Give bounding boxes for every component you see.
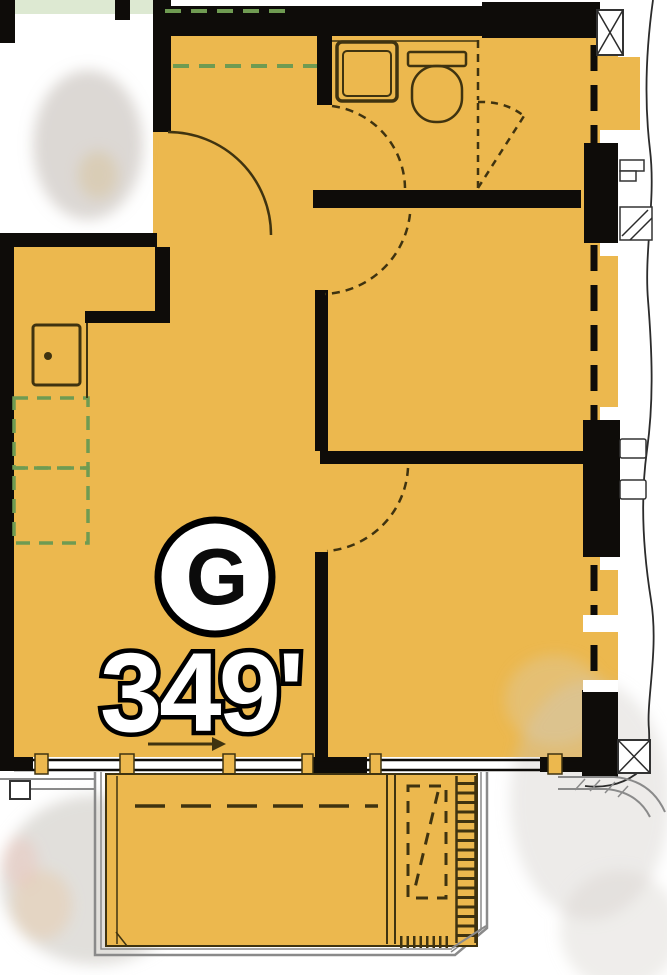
facade-block-1 (584, 143, 618, 243)
unit-area-label: 349' (100, 630, 302, 755)
vent-hatch-square (620, 207, 652, 240)
unit-label: G (186, 532, 248, 621)
notch-bottom-wall (0, 233, 157, 247)
neighbor-balcony-post (10, 781, 30, 799)
center-wall-low (315, 552, 328, 771)
center-wall-mid (315, 290, 328, 451)
hose-bib-symbol (620, 160, 644, 181)
floor-plan-unit-g: G 349' (0, 0, 667, 975)
upper-terrace-fill (618, 57, 640, 130)
facade-block-3 (582, 690, 618, 778)
kitchen-sink-drain (44, 352, 52, 360)
balcony (95, 772, 487, 955)
fixture-tab-2 (620, 480, 646, 499)
left-outer-wall (0, 233, 14, 771)
bedroom-divider-wall (320, 451, 583, 464)
landscape-strip (13, 0, 163, 14)
top-wall (165, 6, 482, 36)
facade-block-2 (583, 420, 620, 557)
alcove-wall (155, 247, 170, 318)
bathroom-wall-stub (317, 36, 332, 105)
unit-label-badge[interactable]: G (158, 520, 272, 634)
fixture-tab-1 (620, 439, 646, 458)
column-hatch-box-bottom (618, 740, 650, 773)
column-hatch-box-top (597, 10, 623, 55)
hall-wall (313, 190, 581, 208)
floor-plan-drawing: G 349' (0, 0, 667, 975)
